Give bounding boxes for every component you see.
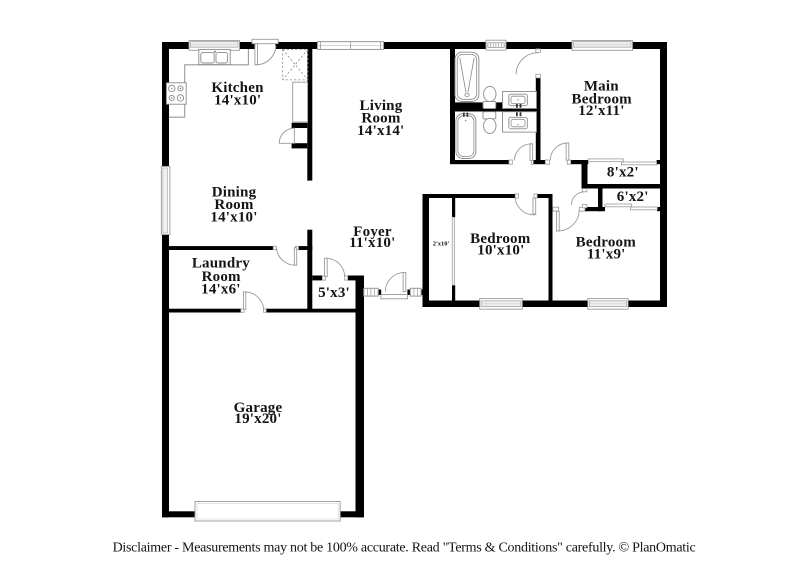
svg-text:14'x10': 14'x10': [210, 209, 257, 225]
svg-text:10'x10': 10'x10': [477, 243, 524, 259]
svg-text:11'x9': 11'x9': [587, 247, 626, 263]
svg-text:5'x3': 5'x3': [318, 285, 350, 301]
svg-text:12'x11': 12'x11': [578, 103, 624, 119]
svg-text:19'x20': 19'x20': [234, 411, 281, 427]
svg-text:Disclaimer - Measurements may: Disclaimer - Measurements may not be 100…: [113, 540, 696, 555]
svg-text:6'x2': 6'x2': [617, 189, 649, 205]
svg-text:14'x6': 14'x6': [201, 281, 241, 297]
svg-text:11'x10': 11'x10': [349, 235, 395, 251]
svg-text:14'x10': 14'x10': [214, 93, 261, 109]
svg-text:8'x2': 8'x2': [607, 164, 639, 180]
svg-text:14'x14': 14'x14': [357, 123, 404, 139]
svg-text:2'x10': 2'x10': [433, 241, 450, 248]
